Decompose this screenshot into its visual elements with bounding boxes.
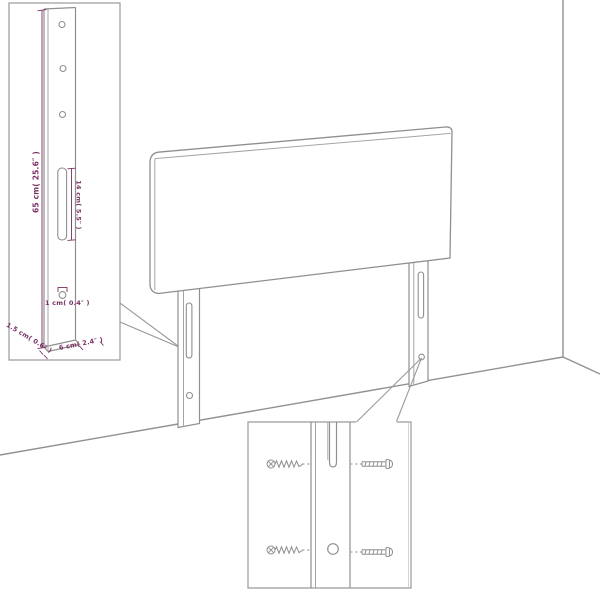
diagram-line-art: [0, 0, 600, 600]
left-leg: [178, 286, 200, 428]
hole-dimension-label: 1 cm( 0.4″ ): [45, 300, 90, 307]
height-dimension-label: 65 cm( 25.6″ ): [32, 151, 40, 213]
inset-leg-slot: [58, 168, 67, 240]
floor-right-line: [563, 357, 600, 374]
hardware-inset: [248, 422, 411, 588]
right-callout-leaders: [357, 358, 422, 422]
left-callout-leaders: [120, 303, 180, 348]
inset-leg-hole: [59, 292, 66, 299]
slot-dimension-label: 14 cm( 5.5″ ): [75, 180, 82, 229]
left-leg-slot: [186, 303, 192, 358]
headboard-diagram: 65 cm( 25.6″ ) 14 cm( 5.5″ ) 1 cm( 0.4″ …: [0, 0, 600, 600]
headboard-panel: [150, 127, 452, 294]
left-leg-hole: [187, 393, 193, 399]
right-leg-slot: [418, 272, 423, 318]
